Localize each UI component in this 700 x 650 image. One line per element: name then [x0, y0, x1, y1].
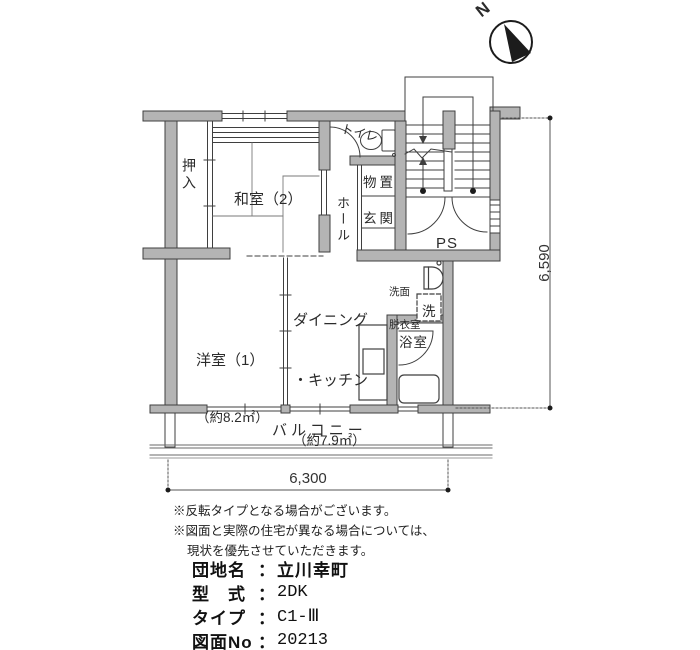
western-room-name: 洋室（1）: [196, 351, 269, 370]
room-label-washitsu: 和室（2）: [234, 188, 302, 209]
western-room-area: （約8.2㎡）: [196, 408, 269, 427]
room-label-dk: ダイニング ・キッチン （約7.9㎡）: [293, 271, 368, 491]
info-separator: ：: [256, 628, 277, 650]
room-label-western: 洋室（1） （約8.2㎡）: [196, 313, 269, 465]
room-label-hall: ホール: [333, 196, 352, 244]
info-label: タイプ: [192, 604, 256, 629]
dimension-width: 6,300: [258, 470, 358, 487]
compass-icon: [490, 21, 532, 63]
dimension-height: 6,590: [536, 233, 552, 293]
room-label-ps: PS: [436, 235, 458, 252]
info-value: 2DK: [277, 583, 308, 602]
info-value: C1-Ⅲ: [277, 606, 319, 627]
info-value: 立川幸町: [277, 556, 349, 581]
info-separator: ：: [256, 604, 277, 629]
washroom-line2: 脱衣室: [389, 320, 421, 331]
info-row-plan-type: タイプ：C1-Ⅲ: [192, 604, 349, 628]
room-label-entrance: 玄関: [363, 207, 396, 227]
dk-line1: ダイニング: [293, 311, 368, 331]
dk-line2: ・キッチン: [293, 371, 368, 391]
info-value: 20213: [277, 631, 328, 650]
floorplan-page: N 押入 和室（2） ホール トイレ 物置 玄関 PS 洗面 脱衣室 洗 浴室 …: [0, 0, 700, 650]
info-separator: ：: [256, 580, 277, 605]
note-line2: ※図面と実際の住宅が異なる場合については、: [173, 521, 435, 541]
info-label: 型 式: [192, 580, 256, 605]
info-block: 団地名：立川幸町 型 式：2DK タイプ：C1-Ⅲ 図面No：20213: [192, 556, 349, 650]
washroom-line1: 洗面: [389, 287, 421, 298]
info-row-drawing-no: 図面No：20213: [192, 628, 349, 650]
info-label: 図面No: [192, 628, 256, 650]
room-label-bath: 浴室: [399, 331, 428, 351]
sink-icon: [424, 261, 443, 289]
room-label-oshiire: 押入: [179, 158, 199, 192]
info-separator: ：: [256, 556, 277, 581]
notes-block: ※反転タイプとなる場合がございます。 ※図面と実際の住宅が異なる場合については、…: [173, 501, 435, 561]
info-label: 団地名: [192, 556, 256, 581]
note-line1: ※反転タイプとなる場合がございます。: [173, 501, 435, 521]
stairwell: [405, 77, 493, 234]
room-label-balcony: バルコニー: [272, 419, 367, 440]
info-row-type: 型 式：2DK: [192, 580, 349, 604]
info-row-danchi: 団地名：立川幸町: [192, 556, 349, 580]
room-label-storage: 物置: [363, 171, 396, 191]
room-label-laundry: 洗: [422, 300, 436, 320]
